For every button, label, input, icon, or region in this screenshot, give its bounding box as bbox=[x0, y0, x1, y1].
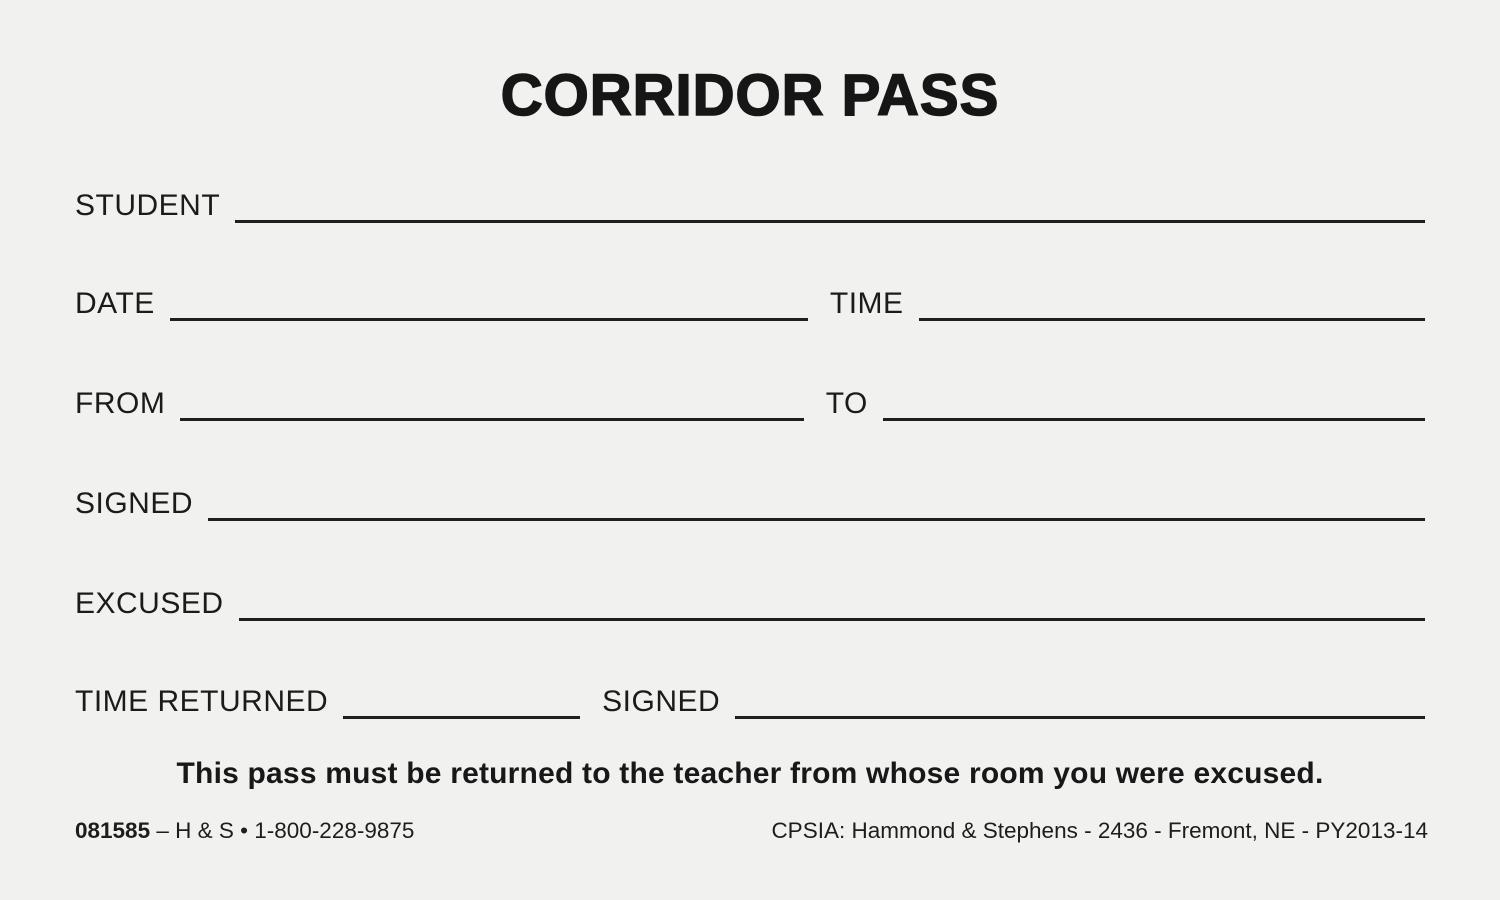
excused-row: EXCUSED bbox=[75, 581, 1425, 621]
excused-label: EXCUSED bbox=[75, 587, 224, 622]
student-row: STUDENT bbox=[75, 183, 1425, 223]
date-time-row: DATE TIME bbox=[75, 281, 1425, 321]
from-label: FROM bbox=[75, 387, 165, 422]
signed-return-label: SIGNED bbox=[602, 685, 720, 720]
signed-return-input-line[interactable] bbox=[735, 685, 1425, 719]
to-input-line[interactable] bbox=[883, 387, 1425, 421]
student-input-line[interactable] bbox=[235, 189, 1425, 223]
page-title: CORRIDOR PASS bbox=[0, 62, 1500, 129]
signed-input-line[interactable] bbox=[208, 487, 1425, 521]
signed-row: SIGNED bbox=[75, 481, 1425, 521]
time-returned-input-line[interactable] bbox=[343, 685, 580, 719]
excused-input-line[interactable] bbox=[239, 587, 1425, 621]
signed-label: SIGNED bbox=[75, 487, 193, 522]
student-label: STUDENT bbox=[75, 189, 220, 224]
time-returned-label: TIME RETURNED bbox=[75, 685, 328, 720]
from-to-row: FROM TO bbox=[75, 381, 1425, 421]
time-returned-row: TIME RETURNED SIGNED bbox=[75, 679, 1425, 719]
date-label: DATE bbox=[75, 287, 155, 322]
form-number: 081585 bbox=[75, 818, 150, 843]
to-label: TO bbox=[826, 387, 868, 422]
footer-left-text: – H & S • 1-800-228-9875 bbox=[156, 818, 414, 843]
return-instruction-note: This pass must be returned to the teache… bbox=[0, 757, 1500, 791]
date-input-line[interactable] bbox=[170, 287, 808, 321]
corridor-pass-document: CORRIDOR PASS STUDENT DATE TIME FROM TO … bbox=[0, 0, 1500, 900]
time-label: TIME bbox=[830, 287, 904, 322]
footer-left: 081585 – H & S • 1-800-228-9875 bbox=[75, 818, 414, 844]
footer-right-text: CPSIA: Hammond & Stephens - 2436 - Fremo… bbox=[771, 818, 1428, 844]
time-input-line[interactable] bbox=[919, 287, 1425, 321]
from-input-line[interactable] bbox=[180, 387, 803, 421]
footer: 081585 – H & S • 1-800-228-9875 CPSIA: H… bbox=[75, 818, 1428, 844]
